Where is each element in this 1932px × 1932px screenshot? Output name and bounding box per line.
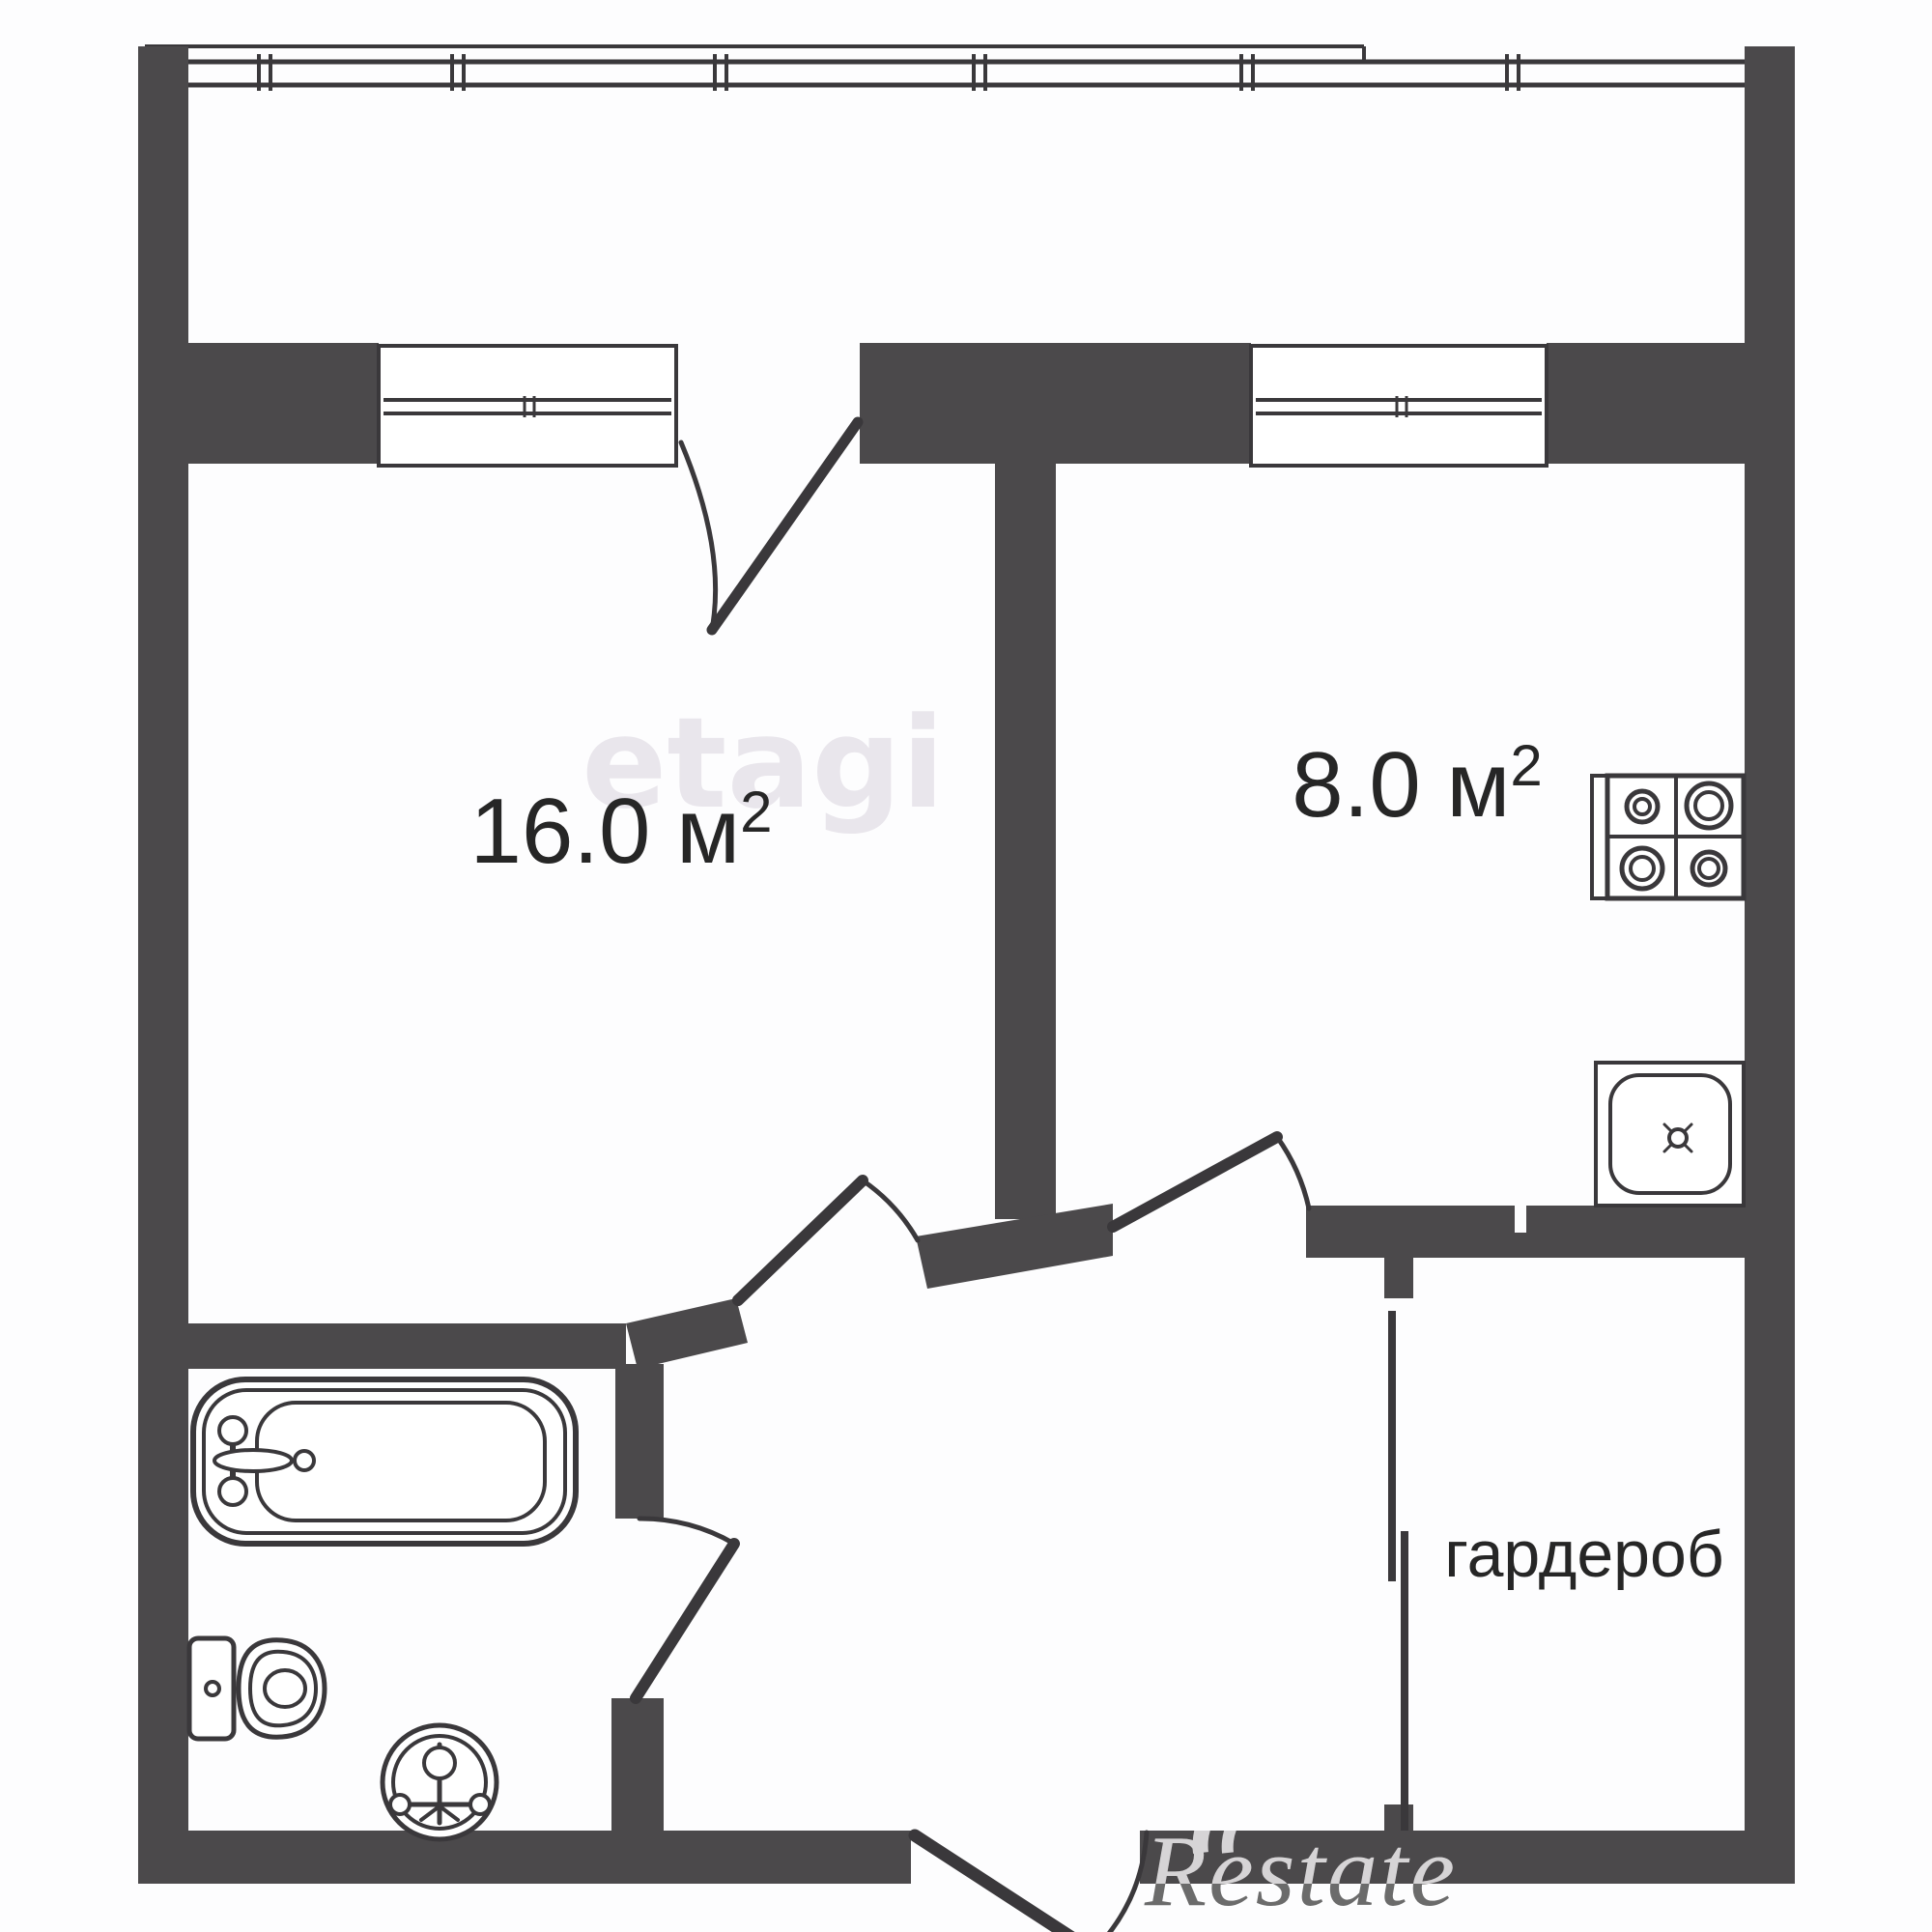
wardrobe-label: гардероб [1444, 1518, 1723, 1591]
floor-plan-canvas: etagi Restate Restate 16.0 м2 8.0 м2 гар… [0, 0, 1932, 1932]
angled-wall-left [626, 1298, 748, 1369]
bathroom-door [636, 1519, 734, 1698]
kitchen-window [1251, 346, 1547, 466]
room-area-living: 16.0 м2 [470, 780, 773, 883]
top-wall-segment-middle [860, 343, 1251, 464]
bathroom-top-wall [188, 1323, 626, 1369]
bathroom-door-jamb-upper [615, 1364, 664, 1519]
room-area-kitchen-value: 8.0 м [1292, 733, 1510, 837]
stove-icon [1592, 776, 1744, 898]
living-room-door [738, 1180, 918, 1300]
top-wall-segment-right [1547, 343, 1745, 464]
kitchen-door-leaf [1113, 1137, 1277, 1227]
toilet-tank [189, 1638, 234, 1739]
living-door-swing-arc [863, 1180, 918, 1240]
wardrobe-partition-line-upper [1388, 1311, 1396, 1581]
wardrobe-partition-line-lower [1401, 1531, 1408, 1831]
living-window-frame [379, 346, 676, 466]
room-area-kitchen-sup: 2 [1510, 733, 1542, 798]
walls [138, 46, 1795, 1884]
balcony-railing [142, 46, 1745, 91]
balcony-door-swing-arc [681, 442, 716, 630]
bathtub-tap-knob-bottom [219, 1478, 246, 1505]
balcony-door-leaf [712, 422, 858, 630]
left-wall [138, 46, 188, 1884]
kitchen-window-frame [1251, 346, 1547, 466]
sink-icon [1596, 1063, 1744, 1206]
bathtub-tap-knob-top [219, 1417, 246, 1444]
toilet-icon [189, 1638, 325, 1739]
entry-door [915, 1833, 1147, 1932]
entry-door-leaf [915, 1835, 1072, 1932]
doors [636, 422, 1309, 1932]
interior-wall-living-kitchen [995, 464, 1056, 1219]
bathroom-door-swing-arc [639, 1519, 734, 1544]
room-area-living-value: 16.0 м [470, 780, 741, 883]
bathroom-door-leaf [636, 1544, 734, 1698]
bottom-wall-left [138, 1831, 911, 1884]
drain-knob-left [390, 1795, 410, 1814]
bathroom-door-jamb-lower [611, 1698, 664, 1833]
living-room-window [379, 346, 676, 466]
wardrobe-wall-stub-top [1384, 1258, 1413, 1298]
room-area-living-sup: 2 [740, 780, 772, 844]
kitchen-door [1113, 1137, 1309, 1227]
bathtub-icon [193, 1379, 576, 1544]
wardrobe-partition [1388, 1311, 1408, 1831]
floor-drain-icon [383, 1725, 497, 1839]
bathtub-spout [214, 1450, 292, 1471]
floor-plan-page: etagi Restate Restate 16.0 м2 8.0 м2 гар… [0, 0, 1932, 1932]
top-wall-segment-left [188, 343, 379, 464]
room-area-kitchen: 8.0 м2 [1292, 733, 1543, 837]
right-wall [1745, 46, 1795, 1884]
kitchen-door-swing-arc [1277, 1137, 1309, 1208]
living-door-leaf [738, 1180, 863, 1300]
drain-knob-right [470, 1795, 490, 1814]
drain-top-ring [424, 1747, 455, 1778]
bathtub-drain [295, 1451, 314, 1470]
kitchen-bottom-wall [1306, 1206, 1795, 1258]
kitchen-bottom-wall-notch [1515, 1206, 1526, 1233]
balcony-door [681, 422, 858, 630]
